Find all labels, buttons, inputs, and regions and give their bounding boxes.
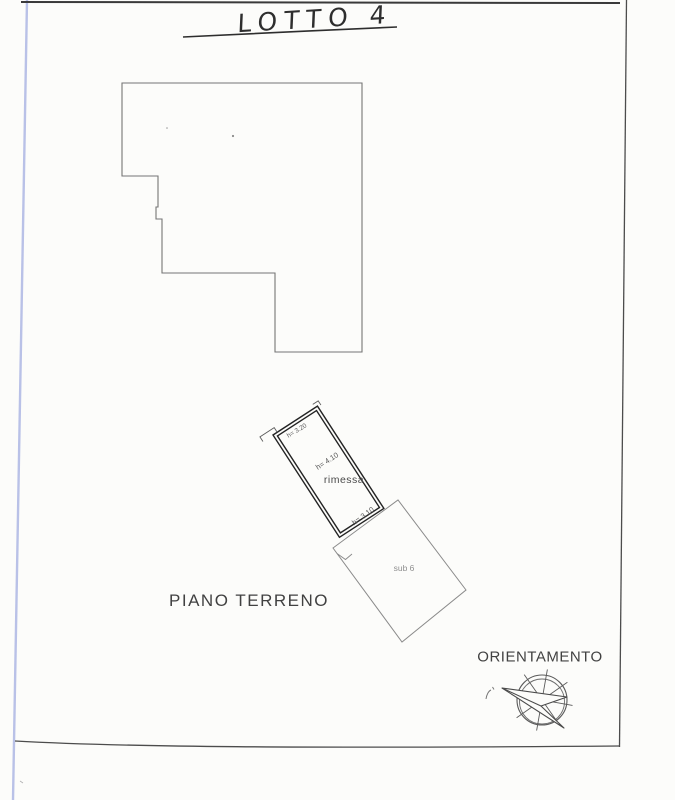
sheet-frame (15, 0, 627, 747)
floor-label: PIANO TERRENO (169, 591, 329, 611)
scan-speck (232, 135, 234, 137)
building-outline (122, 83, 362, 352)
orientation-label: ORIENTAMENTO (477, 649, 602, 666)
compass-rose-icon (502, 669, 573, 730)
sub-unit-label: sub 6 (394, 563, 415, 573)
scan-paper-edge (13, 0, 27, 800)
floor-plan-drawing (0, 0, 675, 800)
scan-speck (20, 781, 23, 783)
scan-speck (166, 127, 168, 129)
corner-notch (313, 401, 321, 409)
room-label: rimessa (324, 474, 364, 486)
scanned-floor-plan-page: LOTTO 4 h= 3.20 h= 4.10 rimessa h= 3.10 … (0, 0, 675, 800)
handwritten-mark (486, 687, 494, 699)
compass-needle (502, 688, 567, 728)
